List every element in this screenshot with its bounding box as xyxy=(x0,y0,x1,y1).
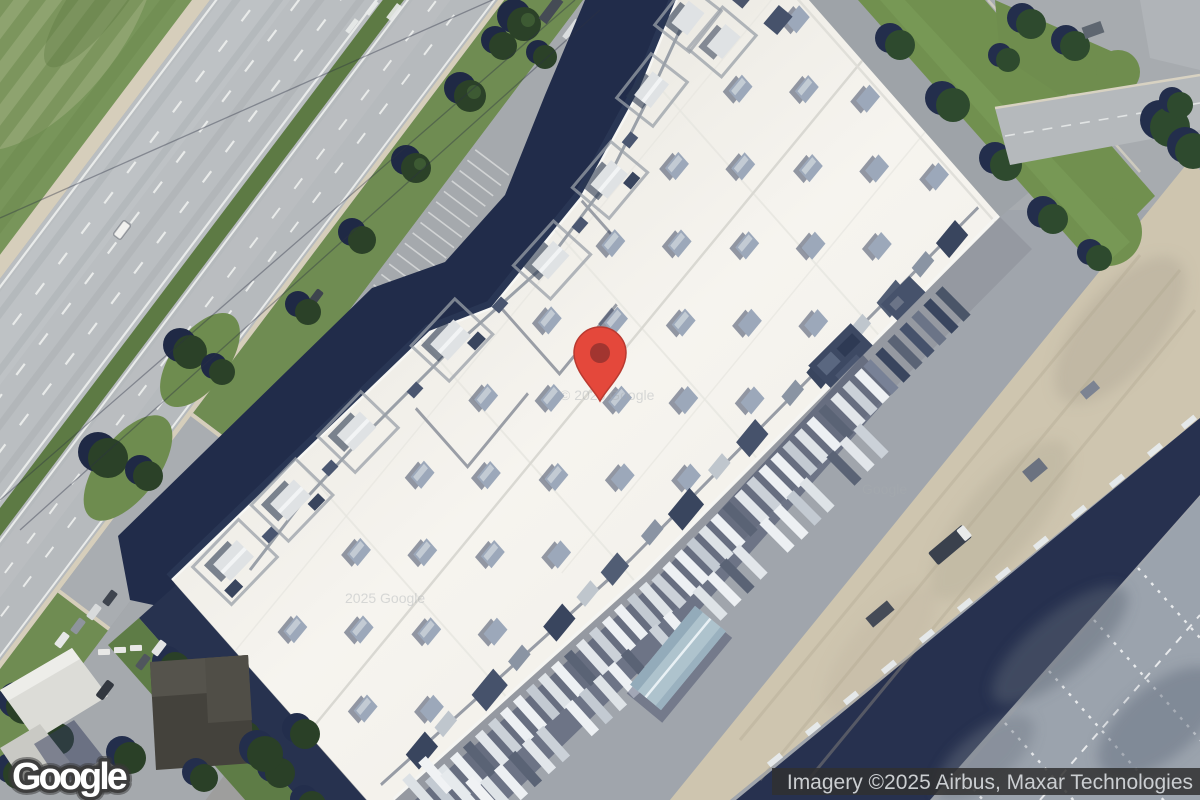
svg-text:2025 Google: 2025 Google xyxy=(345,590,425,606)
svg-text:Google: Google xyxy=(862,481,907,497)
svg-text:Google: Google xyxy=(12,756,127,798)
svg-text:Imagery ©2025 Airbus, Maxar Te: Imagery ©2025 Airbus, Maxar Technologies xyxy=(787,771,1193,794)
